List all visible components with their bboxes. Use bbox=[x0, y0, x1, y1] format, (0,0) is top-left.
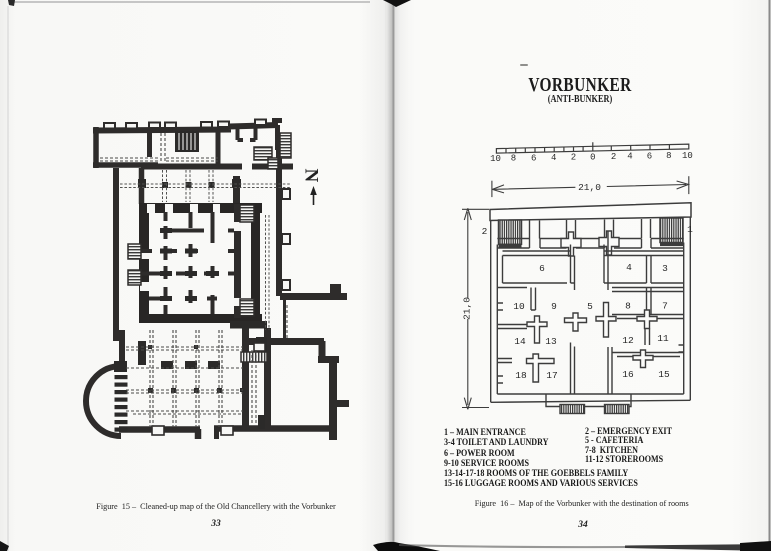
svg-text:21,0: 21,0 bbox=[462, 297, 473, 320]
svg-text:8: 8 bbox=[625, 301, 631, 312]
svg-text:18: 18 bbox=[515, 370, 527, 381]
svg-text:9: 9 bbox=[551, 301, 557, 312]
svg-text:7: 7 bbox=[662, 301, 668, 312]
svg-text:21,0: 21,0 bbox=[578, 182, 601, 193]
svg-text:2: 2 bbox=[571, 153, 576, 163]
svg-text:10: 10 bbox=[513, 301, 525, 312]
svg-text:17: 17 bbox=[546, 370, 557, 381]
svg-text:2: 2 bbox=[611, 152, 616, 162]
svg-text:5: 5 bbox=[587, 301, 593, 312]
svg-text:6: 6 bbox=[647, 151, 652, 161]
svg-text:10: 10 bbox=[490, 154, 501, 164]
svg-text:14: 14 bbox=[514, 336, 526, 347]
svg-text:4: 4 bbox=[551, 153, 556, 163]
svg-text:3: 3 bbox=[662, 263, 668, 274]
svg-text:0: 0 bbox=[590, 152, 595, 162]
svg-text:6: 6 bbox=[539, 263, 545, 274]
svg-text:10: 10 bbox=[682, 151, 693, 161]
svg-text:13: 13 bbox=[545, 336, 557, 347]
svg-text:4: 4 bbox=[626, 262, 632, 273]
svg-text:4: 4 bbox=[627, 152, 632, 162]
svg-text:6: 6 bbox=[531, 153, 536, 163]
svg-text:11: 11 bbox=[657, 333, 669, 344]
svg-text:8: 8 bbox=[511, 154, 516, 164]
svg-text:15: 15 bbox=[658, 369, 670, 380]
svg-text:8: 8 bbox=[666, 151, 671, 161]
svg-text:1: 1 bbox=[687, 224, 693, 235]
svg-text:2: 2 bbox=[482, 226, 488, 237]
svg-text:12: 12 bbox=[622, 335, 634, 346]
svg-text:16: 16 bbox=[622, 369, 634, 380]
